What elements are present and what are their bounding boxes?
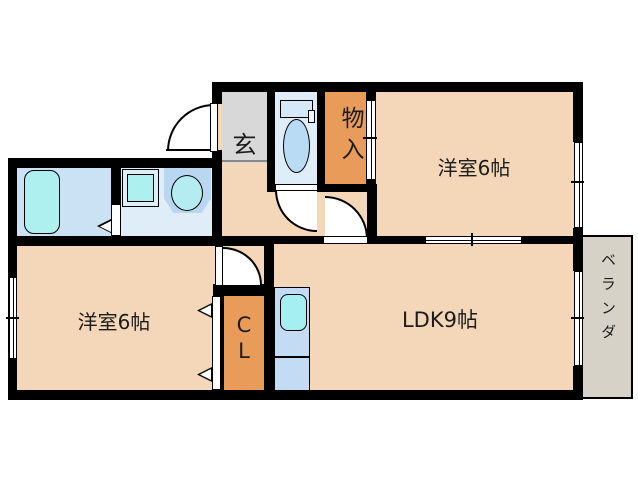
- wash-basin-icon: [171, 175, 203, 211]
- genkan-step-line: [222, 160, 267, 162]
- ldk-label: LDK9帖: [365, 304, 515, 334]
- wall: [8, 236, 265, 246]
- washing-machine-tub: [127, 174, 154, 202]
- entrance-door: [210, 103, 218, 152]
- wall: [267, 92, 275, 192]
- toilet-door: [275, 184, 318, 191]
- bath-folding-door: [111, 204, 121, 236]
- wall: [317, 92, 325, 186]
- bedroom-bottom-label: 洋室6帖: [44, 306, 184, 335]
- window-tick: [571, 317, 584, 319]
- wall: [8, 390, 583, 400]
- bedroom-ldk-sliding-door: [425, 236, 522, 244]
- bedroom-top-label: 洋室6帖: [404, 152, 544, 181]
- entrance-door-swing: [167, 104, 214, 151]
- storage-sliding-door: [366, 100, 376, 180]
- bedroom-door: [215, 246, 223, 286]
- toilet-icon: [283, 119, 310, 173]
- wall: [366, 236, 426, 244]
- wall: [111, 167, 121, 207]
- wall: [264, 236, 274, 392]
- closet-label: C L: [224, 312, 264, 364]
- kitchen-sink-icon: [280, 294, 307, 331]
- bathtub-icon: [24, 170, 60, 234]
- closet-folding-door: [212, 296, 221, 390]
- veranda-label: ベランダ: [598, 252, 619, 348]
- window-tick: [6, 317, 19, 319]
- genkan-label: 玄: [222, 125, 267, 160]
- window-tick: [571, 181, 584, 183]
- window-tick: [471, 233, 473, 246]
- storage-label: 物入: [333, 106, 367, 168]
- window-bedroom-top-right: [574, 142, 583, 228]
- wall: [366, 92, 376, 100]
- entrance-door-base-line: [166, 149, 216, 151]
- wall: [573, 82, 583, 142]
- wall: [573, 228, 583, 271]
- closet-label-line1: C: [224, 312, 264, 338]
- closet-label-line2: L: [224, 338, 264, 364]
- wall: [367, 184, 377, 244]
- floor-plan: ベランダ: [0, 0, 638, 480]
- kitchen-counter-divider: [274, 356, 310, 358]
- ldk-door: [323, 236, 368, 244]
- wall: [212, 82, 583, 92]
- toilet-flush-handle: [308, 110, 315, 123]
